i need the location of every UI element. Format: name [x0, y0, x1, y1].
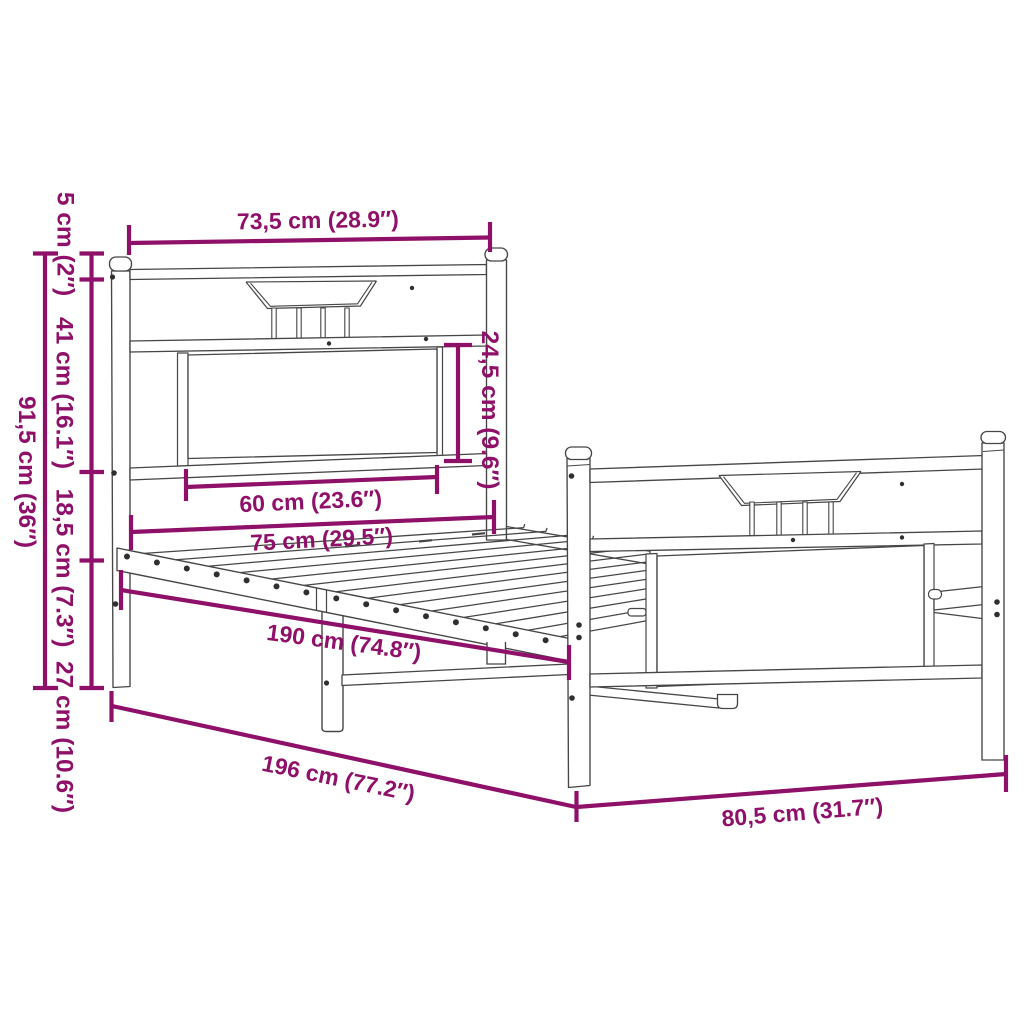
svg-text:27 cm (10.6″): 27 cm (10.6″)	[51, 661, 78, 813]
svg-text:41 cm (16.1″): 41 cm (16.1″)	[51, 317, 78, 469]
svg-text:91,5 cm (36″): 91,5 cm (36″)	[13, 396, 40, 548]
svg-text:73,5 cm (28.9″): 73,5 cm (28.9″)	[237, 206, 399, 235]
svg-text:24,5 cm (9.6″): 24,5 cm (9.6″)	[476, 331, 503, 490]
svg-text:18,5 cm (7.3″): 18,5 cm (7.3″)	[51, 489, 78, 648]
svg-text:5 cm (2″): 5 cm (2″)	[52, 192, 79, 296]
